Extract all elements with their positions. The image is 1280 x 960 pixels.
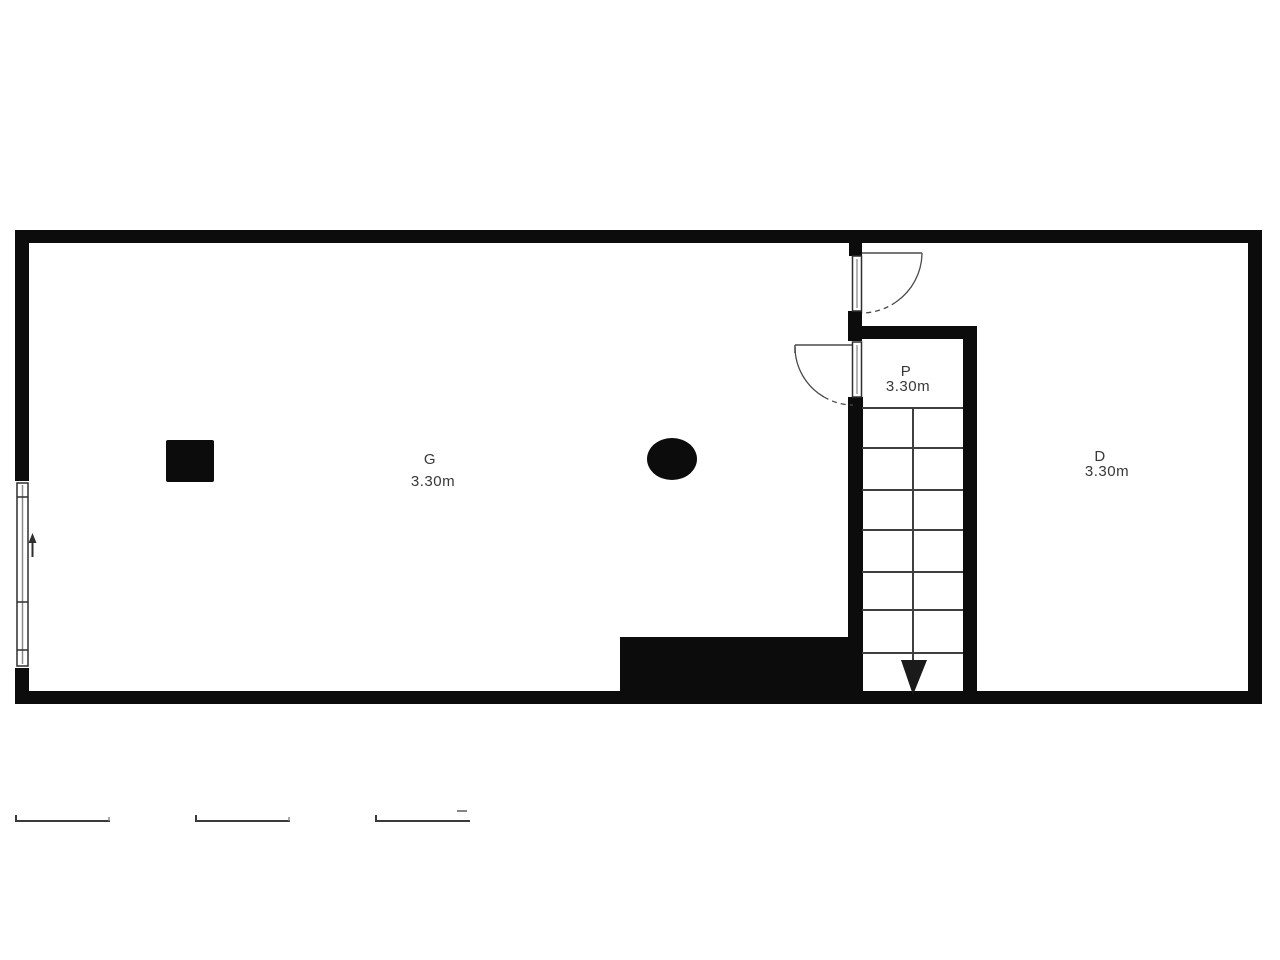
- door-wall-stub-top: [849, 243, 862, 256]
- room-p-dimension: 3.30m: [886, 378, 930, 395]
- door-wall-stub-middle: [848, 311, 862, 341]
- door-upper-swing-arc: [896, 253, 922, 302]
- edge-mark-2: [196, 815, 290, 821]
- bottom-edge-marks: [16, 811, 470, 821]
- edge-mark-3: [376, 815, 470, 821]
- stair-down-arrow-icon: [901, 660, 927, 695]
- edge-mark-1: [16, 815, 110, 821]
- outer-wall-top: [15, 230, 1262, 243]
- staircase: [862, 408, 963, 695]
- window: [15, 481, 29, 668]
- floor-plan-canvas: G 3.30m P 3.30m D 3.30m: [0, 0, 1280, 960]
- door-upper: [853, 253, 923, 313]
- room-labels: G 3.30m P 3.30m D 3.30m: [411, 363, 1129, 490]
- outer-wall-left-upper: [15, 230, 29, 482]
- floor-plan: G 3.30m P 3.30m D 3.30m: [0, 0, 1280, 960]
- room-d-dimension: 3.30m: [1085, 463, 1129, 480]
- furniture-square: [166, 440, 214, 482]
- entry-arrow-icon: [29, 533, 37, 557]
- room-p-top-wall: [862, 326, 977, 339]
- door-upper-swing-arc-dashed: [862, 302, 896, 313]
- stair-right-wall: [963, 326, 977, 691]
- room-g-label: G: [424, 451, 436, 468]
- outer-wall-left-lower: [15, 667, 29, 704]
- door-lower-swing-arc: [795, 347, 824, 397]
- outer-wall-right: [1248, 230, 1262, 704]
- solid-block: [620, 637, 858, 693]
- door-lower: [795, 342, 862, 405]
- room-g-dimension: 3.30m: [411, 473, 455, 490]
- furniture-ellipse: [647, 438, 697, 480]
